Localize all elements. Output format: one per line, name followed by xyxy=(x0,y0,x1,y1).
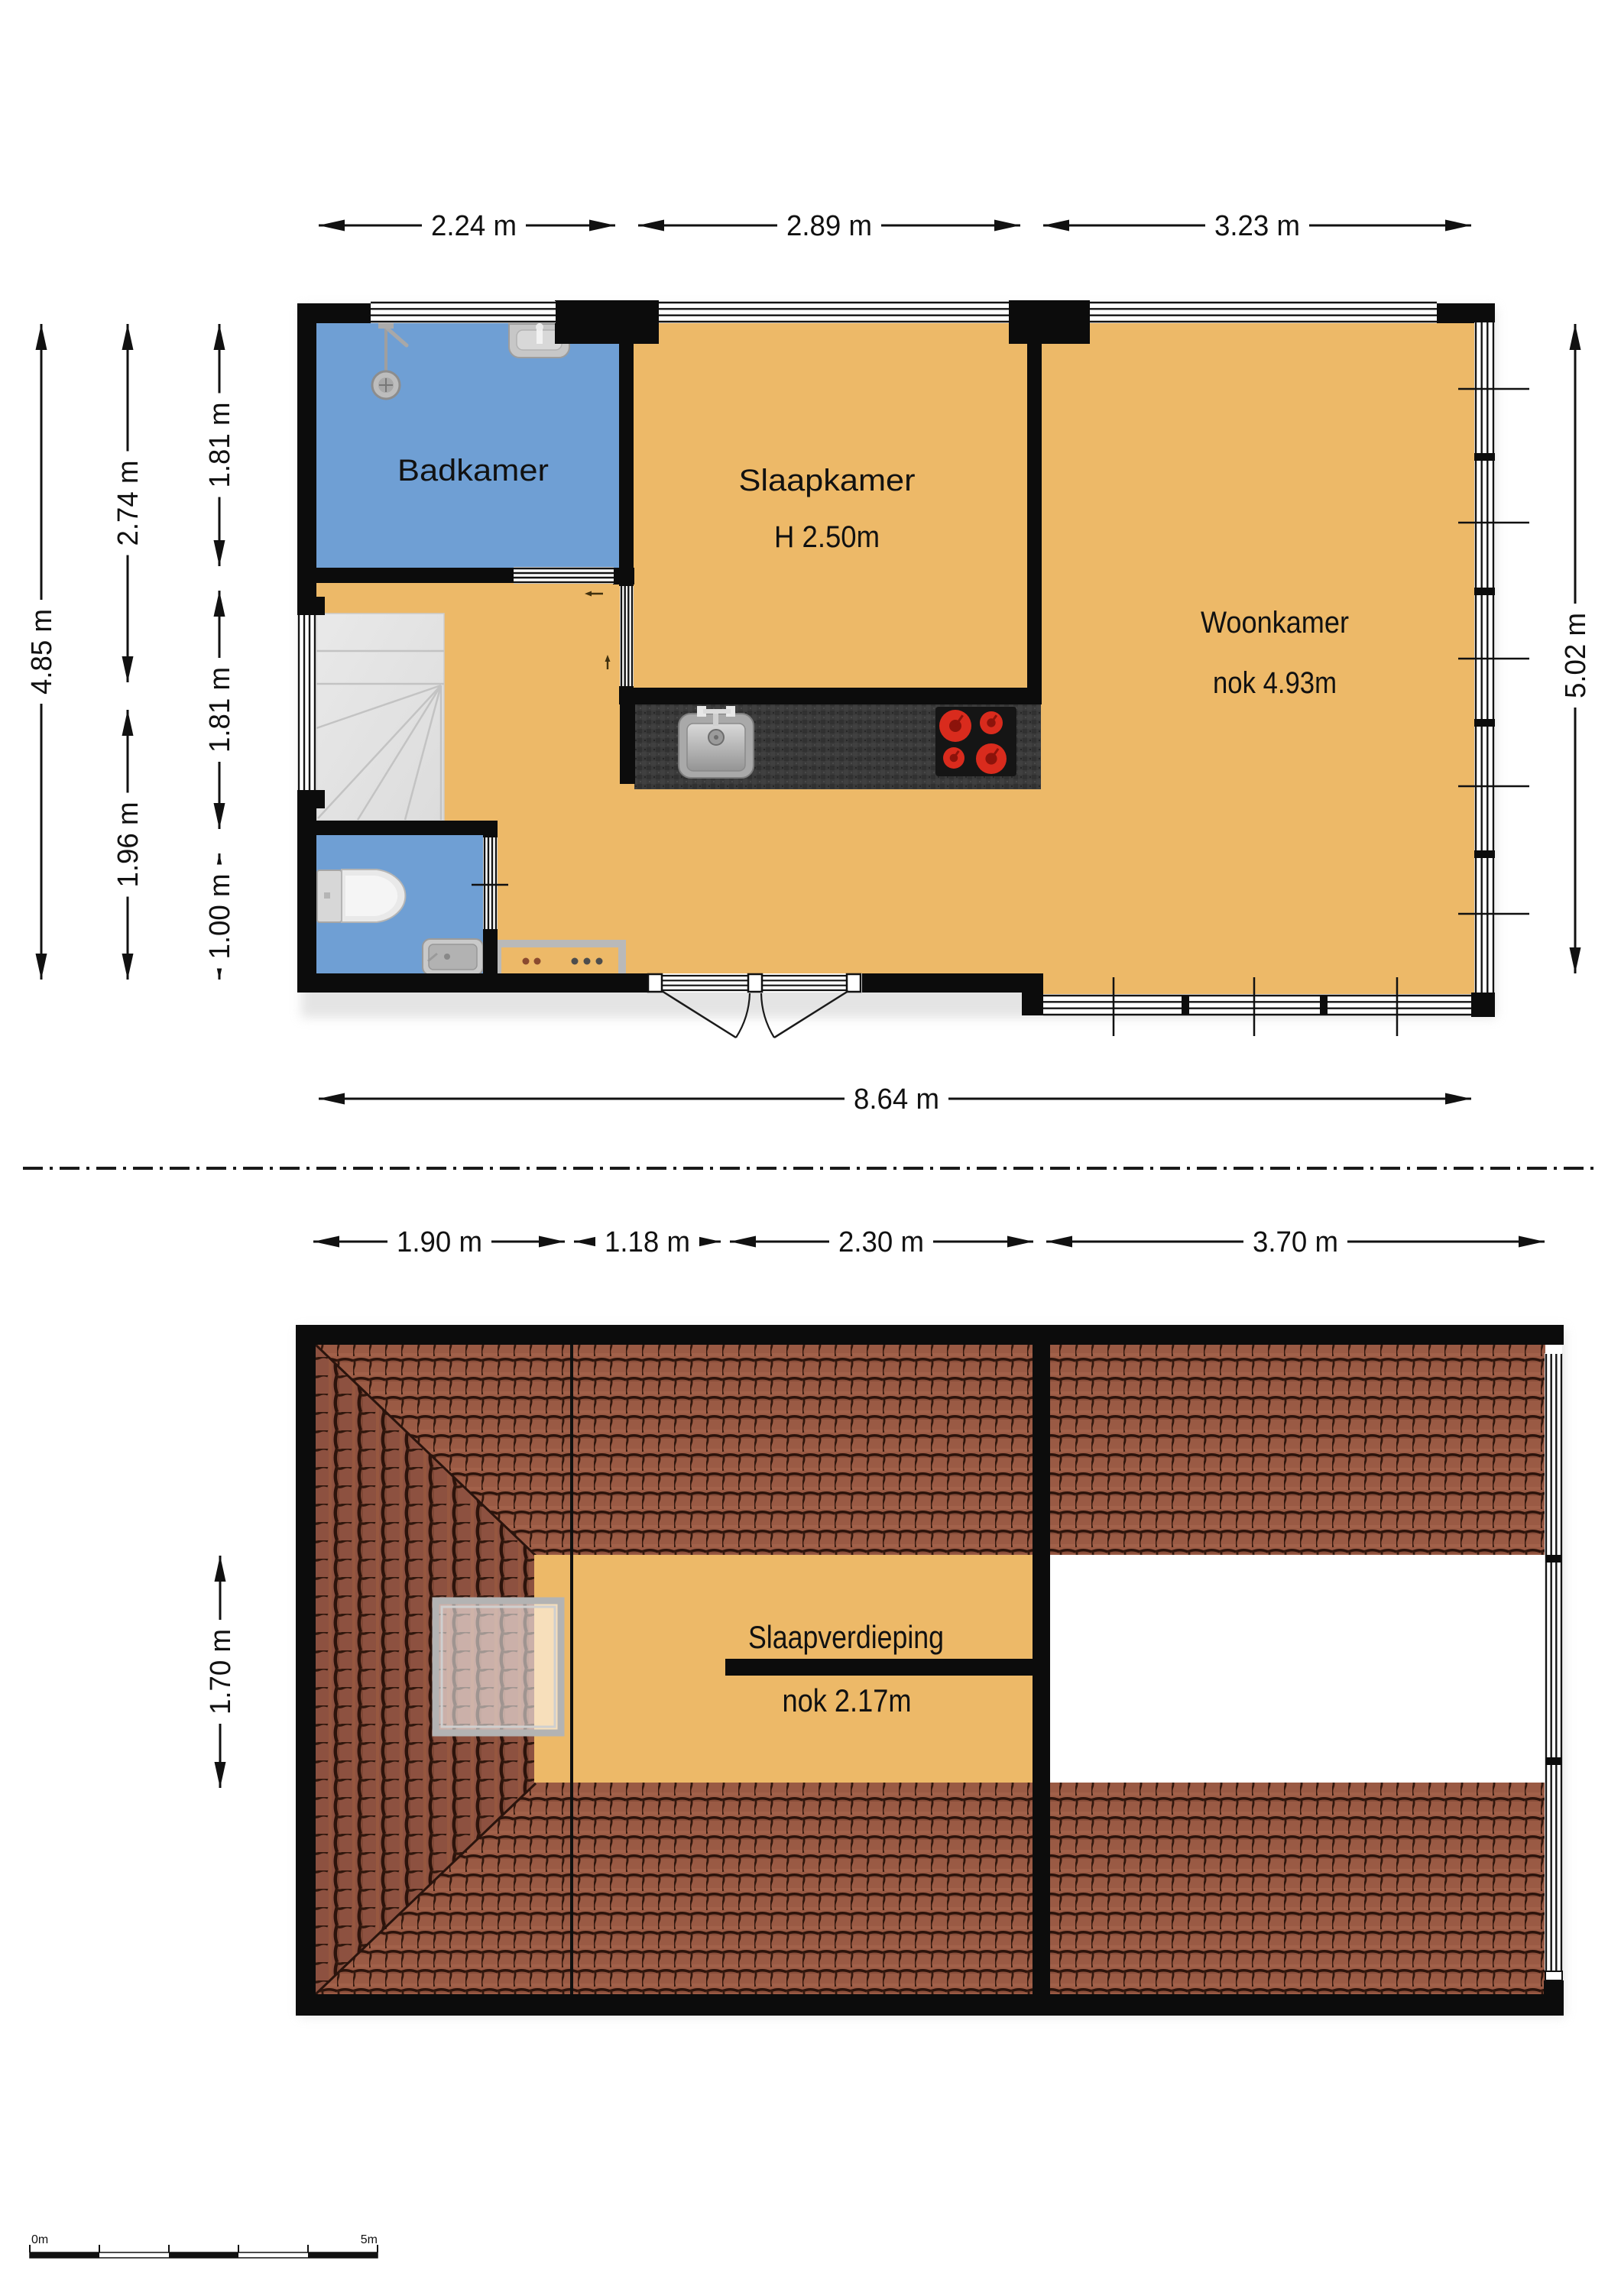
svg-text:1.81 m: 1.81 m xyxy=(204,667,236,753)
svg-text:1.18 m: 1.18 m xyxy=(605,1226,690,1258)
svg-text:8.64 m: 8.64 m xyxy=(854,1083,939,1116)
svg-text:1.96 m: 1.96 m xyxy=(112,802,144,888)
svg-text:H 2.50m: H 2.50m xyxy=(774,520,880,554)
svg-text:5m: 5m xyxy=(361,2233,378,2246)
svg-text:1.00 m: 1.00 m xyxy=(204,874,236,960)
svg-text:0m: 0m xyxy=(31,2233,48,2246)
svg-text:Slaapverdieping: Slaapverdieping xyxy=(748,1619,944,1655)
svg-text:1.90 m: 1.90 m xyxy=(397,1226,482,1258)
svg-text:2.24 m: 2.24 m xyxy=(431,210,517,242)
svg-text:2.74 m: 2.74 m xyxy=(112,461,144,546)
svg-text:nok 4.93m: nok 4.93m xyxy=(1213,666,1337,700)
svg-text:5.02 m: 5.02 m xyxy=(1560,613,1592,698)
svg-text:3.70 m: 3.70 m xyxy=(1253,1226,1338,1258)
svg-text:Woonkamer: Woonkamer xyxy=(1201,606,1349,640)
svg-text:nok 2.17m: nok 2.17m xyxy=(783,1682,912,1718)
svg-text:Slaapkamer: Slaapkamer xyxy=(739,464,916,497)
svg-text:3.23 m: 3.23 m xyxy=(1214,210,1300,242)
svg-text:4.85 m: 4.85 m xyxy=(26,609,58,695)
svg-text:2.89 m: 2.89 m xyxy=(786,210,872,242)
svg-text:1.81 m: 1.81 m xyxy=(204,403,236,488)
svg-text:Badkamer: Badkamer xyxy=(397,454,549,487)
svg-text:2.30 m: 2.30 m xyxy=(838,1226,924,1258)
svg-text:1.70 m: 1.70 m xyxy=(205,1629,237,1715)
